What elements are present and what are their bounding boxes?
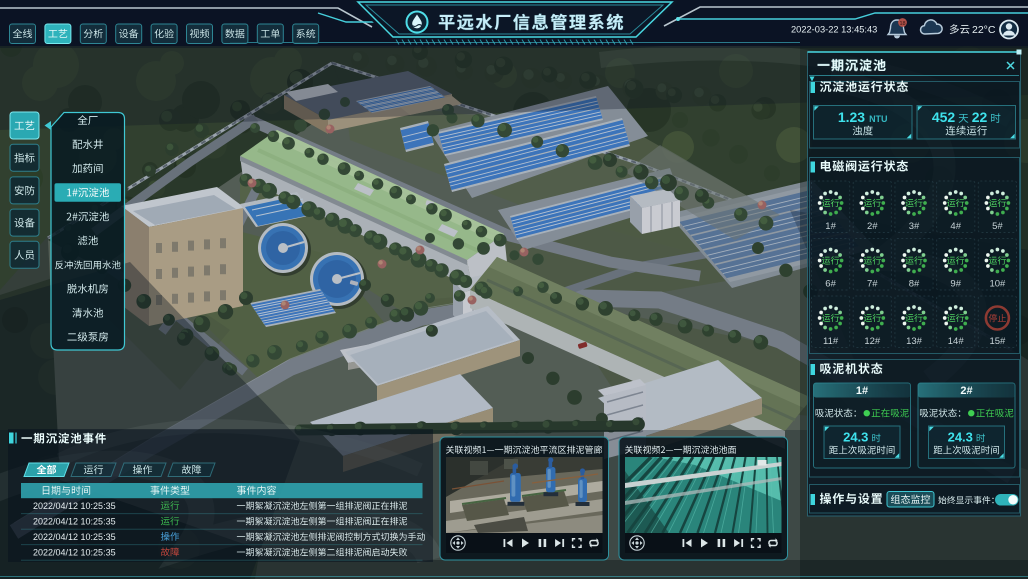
svg-text:2#: 2# bbox=[867, 221, 878, 232]
svg-text:8#: 8# bbox=[909, 279, 920, 290]
svg-text:24.3: 24.3 bbox=[948, 430, 973, 445]
svg-text:2022/04/12 10:25:35: 2022/04/12 10:25:35 bbox=[33, 532, 116, 542]
svg-text:452: 452 bbox=[932, 109, 956, 125]
svg-text:9#: 9# bbox=[950, 279, 961, 290]
svg-text:24.3: 24.3 bbox=[843, 430, 868, 445]
svg-text:NTU: NTU bbox=[869, 114, 888, 124]
svg-text:22°C: 22°C bbox=[972, 24, 996, 36]
svg-text:13#: 13# bbox=[906, 336, 923, 347]
svg-text:5#: 5# bbox=[992, 221, 1003, 232]
svg-text:2022-03-22 13:45:43: 2022-03-22 13:45:43 bbox=[791, 25, 877, 35]
svg-text:11#: 11# bbox=[823, 336, 839, 347]
svg-text:7#: 7# bbox=[867, 279, 878, 290]
svg-text:2022/04/12 10:25:35: 2022/04/12 10:25:35 bbox=[33, 517, 116, 527]
svg-text:1#: 1# bbox=[825, 221, 836, 232]
svg-text:14#: 14# bbox=[948, 336, 965, 347]
svg-text:10#: 10# bbox=[989, 279, 1006, 290]
svg-text:18: 18 bbox=[899, 21, 905, 27]
svg-text:2#: 2# bbox=[960, 385, 972, 397]
svg-text:1#: 1# bbox=[856, 385, 868, 397]
svg-text:4#: 4# bbox=[950, 221, 961, 232]
svg-text:12#: 12# bbox=[864, 336, 881, 347]
svg-text:2022/04/12 10:25:35: 2022/04/12 10:25:35 bbox=[33, 501, 116, 511]
svg-text:1.23: 1.23 bbox=[838, 109, 865, 125]
svg-text:3#: 3# bbox=[909, 221, 920, 232]
svg-text:22: 22 bbox=[972, 109, 988, 125]
svg-text:15#: 15# bbox=[989, 336, 1006, 347]
svg-text:2022/04/12 10:25:35: 2022/04/12 10:25:35 bbox=[33, 548, 116, 558]
svg-text:6#: 6# bbox=[825, 279, 836, 290]
